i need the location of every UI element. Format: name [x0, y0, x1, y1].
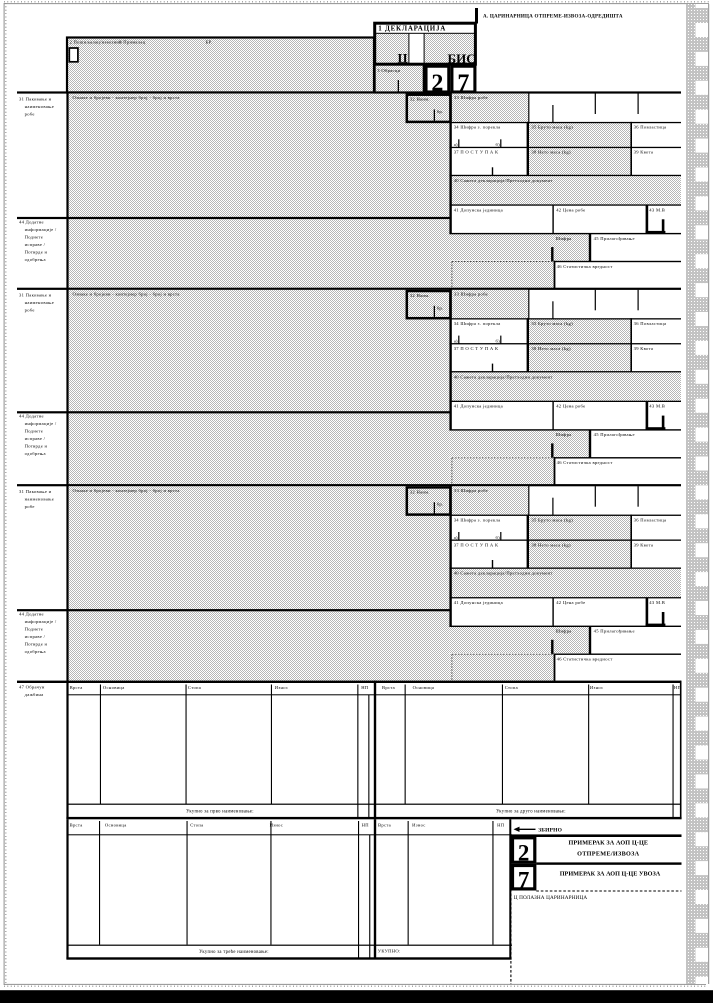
svg-text:Шифра: Шифра — [556, 432, 572, 437]
svg-text:43 М.В: 43 М.В — [649, 600, 665, 605]
svg-text:исправе /: исправе / — [25, 242, 46, 247]
svg-text:31 Паковање и: 31 Паковање и — [19, 96, 52, 101]
svg-text:Укупно за треће наименовање:: Укупно за треће наименовање: — [199, 949, 269, 955]
svg-text:34 Шифра з. порекла: 34 Шифра з. порекла — [454, 517, 501, 522]
svg-text:45 Прилагођивање: 45 Прилагођивање — [594, 236, 635, 241]
svg-text:38 Нето маса (kg): 38 Нето маса (kg) — [531, 150, 571, 155]
svg-text:а): а) — [454, 142, 458, 147]
svg-text:44 Додатне: 44 Додатне — [19, 612, 44, 617]
svg-text:Врста: Врста — [70, 822, 83, 827]
svg-text:39 Квота: 39 Квота — [634, 150, 654, 155]
svg-text:45 Прилагођивање: 45 Прилагођивање — [594, 629, 635, 634]
svg-text:35 Бруто маса (kg): 35 Бруто маса (kg) — [531, 321, 573, 326]
svg-text:а): а) — [454, 535, 458, 540]
svg-text:Врста: Врста — [70, 685, 83, 690]
svg-text:32 Наим.: 32 Наим. — [410, 489, 430, 494]
svg-text:Укупно за прво наименовање:: Укупно за прво наименовање: — [186, 810, 254, 815]
svg-text:Основица: Основица — [413, 685, 435, 690]
svg-text:Износ: Износ — [590, 685, 604, 690]
svg-text:наименовање: наименовање — [25, 497, 54, 502]
svg-text:ПРИМЕРАК ЗА АОП Ц-ЦЕ: ПРИМЕРАК ЗА АОП Ц-ЦЕ — [568, 840, 648, 847]
svg-text:Ознаке и бројеви - контејнер б: Ознаке и бројеви - контејнер број - број… — [73, 488, 180, 493]
svg-text:35 Бруто маса (kg): 35 Бруто маса (kg) — [531, 125, 573, 130]
svg-text:робе: робе — [25, 504, 35, 509]
svg-text:Поднете: Поднете — [25, 627, 43, 632]
svg-text:робе: робе — [25, 308, 35, 313]
svg-text:НП: НП — [362, 822, 370, 827]
svg-text:3 Обрасци: 3 Обрасци — [377, 68, 400, 73]
svg-text:Ознаке и бројеви - контејнер б: Ознаке и бројеви - контејнер број - број… — [73, 95, 180, 100]
svg-text:33 Шифра робе: 33 Шифра робе — [454, 488, 488, 493]
svg-text:Ц: Ц — [398, 51, 408, 66]
svg-text:31 Паковање и: 31 Паковање и — [19, 293, 52, 298]
svg-text:8 Прималац: 8 Прималац — [119, 39, 146, 44]
svg-text:37 П О С Т У П А К: 37 П О С Т У П А К — [454, 542, 499, 547]
svg-text:41 Допунска јединица: 41 Допунска јединица — [454, 600, 503, 605]
svg-text:Укупно за друго наименовање:: Укупно за друго наименовање: — [496, 810, 566, 815]
svg-text:43 М.В: 43 М.В — [649, 404, 665, 409]
svg-text:34 Шифра з. порекла: 34 Шифра з. порекла — [454, 125, 501, 130]
svg-text:Ц ПОЛАЗНА ЦАРИНАРНИЦА: Ц ПОЛАЗНА ЦАРИНАРНИЦА — [514, 895, 588, 901]
svg-text:40 Сажета декларација/Претходн: 40 Сажета декларација/Претходни документ — [454, 374, 553, 379]
svg-text:45 Прилагођивање: 45 Прилагођивање — [594, 432, 635, 437]
svg-text:34 Шифра з. порекла: 34 Шифра з. порекла — [454, 321, 501, 326]
svg-text:46 Статистичка вредност: 46 Статистичка вредност — [557, 657, 613, 662]
svg-text:одобрења: одобрења — [25, 451, 46, 456]
svg-text:44 Додатне: 44 Додатне — [19, 414, 44, 419]
svg-text:Шифра: Шифра — [556, 629, 572, 634]
svg-text:дажбина: дажбина — [25, 692, 44, 697]
svg-text:32 Наим.: 32 Наим. — [410, 293, 430, 298]
svg-text:Стопа: Стопа — [190, 822, 203, 827]
svg-text:исправе /: исправе / — [25, 634, 46, 639]
svg-text:Потврде и: Потврде и — [25, 444, 48, 449]
svg-text:Шифра: Шифра — [556, 236, 572, 241]
svg-text:информације /: информације / — [25, 619, 57, 624]
svg-text:7: 7 — [518, 867, 530, 892]
svg-text:37 П О С Т У П А К: 37 П О С Т У П А К — [454, 346, 499, 351]
svg-text:наименовање: наименовање — [25, 104, 54, 109]
svg-text:ПРИМЕРАК ЗА АОП Ц-ЦЕ УВОЗА: ПРИМЕРАК ЗА АОП Ц-ЦЕ УВОЗА — [560, 871, 661, 878]
svg-text:Основица: Основица — [105, 822, 127, 827]
svg-text:Потврде и: Потврде и — [25, 249, 48, 254]
svg-text:40 Сажета декларација/Претходн: 40 Сажета декларација/Претходни документ — [454, 571, 553, 576]
svg-text:36 Повластица: 36 Повластица — [634, 517, 667, 522]
svg-text:Износ: Износ — [412, 822, 426, 827]
svg-text:44 Додатне: 44 Додатне — [19, 219, 44, 224]
svg-text:УКУПНО:: УКУПНО: — [378, 949, 401, 954]
svg-text:а): а) — [454, 338, 458, 343]
svg-text:робе: робе — [25, 111, 35, 116]
svg-text:Износ: Износ — [270, 822, 284, 827]
svg-text:информације /: информације / — [25, 227, 57, 232]
svg-text:Износ: Износ — [275, 685, 289, 690]
svg-text:35 Бруто маса (kg): 35 Бруто маса (kg) — [531, 517, 573, 522]
svg-text:43 М.В: 43 М.В — [649, 207, 665, 212]
svg-text:б): б) — [496, 535, 501, 540]
svg-text:Потврде и: Потврде и — [25, 642, 48, 647]
svg-text:ЗБИРНО: ЗБИРНО — [538, 827, 562, 833]
svg-text:1 ДЕКЛАРАЦИЈА: 1 ДЕКЛАРАЦИЈА — [378, 25, 446, 33]
svg-text:НП: НП — [674, 685, 682, 690]
svg-text:47 Обрачун: 47 Обрачун — [19, 685, 45, 690]
svg-text:33 Шифра робе: 33 Шифра робе — [454, 291, 488, 296]
svg-text:39 Квота: 39 Квота — [634, 542, 654, 547]
svg-text:42 Цена робе: 42 Цена робе — [556, 207, 585, 212]
svg-text:31 Паковање и: 31 Паковање и — [19, 489, 52, 494]
svg-text:бр.: бр. — [437, 502, 444, 507]
svg-text:36 Повластица: 36 Повластица — [634, 321, 667, 326]
svg-text:32 Наим.: 32 Наим. — [410, 97, 430, 102]
svg-text:42 Цена робе: 42 Цена робе — [556, 404, 585, 409]
svg-text:бр.: бр. — [437, 109, 444, 114]
svg-text:2: 2 — [518, 841, 530, 866]
svg-text:ОТПРЕМЕ/ИЗВОЗА: ОТПРЕМЕ/ИЗВОЗА — [577, 850, 640, 857]
svg-text:исправе /: исправе / — [25, 436, 46, 441]
svg-text:одобрења: одобрења — [25, 649, 46, 654]
svg-text:46 Статистичка вредност: 46 Статистичка вредност — [557, 460, 613, 465]
svg-text:Стопа: Стопа — [188, 685, 201, 690]
svg-text:БР.: БР. — [206, 39, 213, 44]
svg-text:Стопа: Стопа — [505, 685, 518, 690]
svg-text:42 Цена робе: 42 Цена робе — [556, 600, 585, 605]
svg-text:38 Нето маса (kg): 38 Нето маса (kg) — [531, 346, 571, 351]
svg-text:А. ЦАРИНАРНИЦА ОТПРЕМЕ-ИЗВОЗА-: А. ЦАРИНАРНИЦА ОТПРЕМЕ-ИЗВОЗА-ОДРЕДИШТА — [483, 14, 623, 20]
svg-text:41 Допунска јединица: 41 Допунска јединица — [454, 207, 503, 212]
svg-text:НП: НП — [361, 685, 369, 690]
svg-text:Ознаке и бројеви - контејнер б: Ознаке и бројеви - контејнер број - број… — [73, 291, 180, 296]
svg-text:БИС: БИС — [448, 51, 476, 66]
svg-text:НП: НП — [497, 822, 505, 827]
svg-text:информације /: информације / — [25, 421, 57, 426]
svg-text:б): б) — [496, 338, 501, 343]
svg-text:Врста: Врста — [382, 685, 395, 690]
svg-text:46 Статистичка вредност: 46 Статистичка вредност — [557, 264, 613, 269]
svg-text:Врста: Врста — [378, 822, 391, 827]
svg-text:33 Шифра робе: 33 Шифра робе — [454, 95, 488, 100]
svg-text:бр.: бр. — [437, 305, 444, 310]
svg-text:б): б) — [496, 142, 501, 147]
svg-text:Основица: Основица — [103, 685, 125, 690]
svg-text:37 П О С Т У П А К: 37 П О С Т У П А К — [454, 150, 499, 155]
svg-text:39 Квота: 39 Квота — [634, 346, 654, 351]
svg-text:Поднете: Поднете — [25, 429, 43, 434]
svg-text:одобрења: одобрења — [25, 257, 46, 262]
svg-text:Поднете: Поднете — [25, 234, 43, 239]
svg-text:41 Допунска јединица: 41 Допунска јединица — [454, 404, 503, 409]
svg-text:наименовање: наименовање — [25, 300, 54, 305]
svg-text:2 Пошиљалац/извозник: 2 Пошиљалац/извозник — [70, 39, 123, 44]
svg-text:38 Нето маса (kg): 38 Нето маса (kg) — [531, 542, 571, 547]
svg-text:36 Повластица: 36 Повластица — [634, 125, 667, 130]
svg-text:40 Сажета декларација/Претходн: 40 Сажета декларација/Претходни документ — [454, 178, 553, 183]
